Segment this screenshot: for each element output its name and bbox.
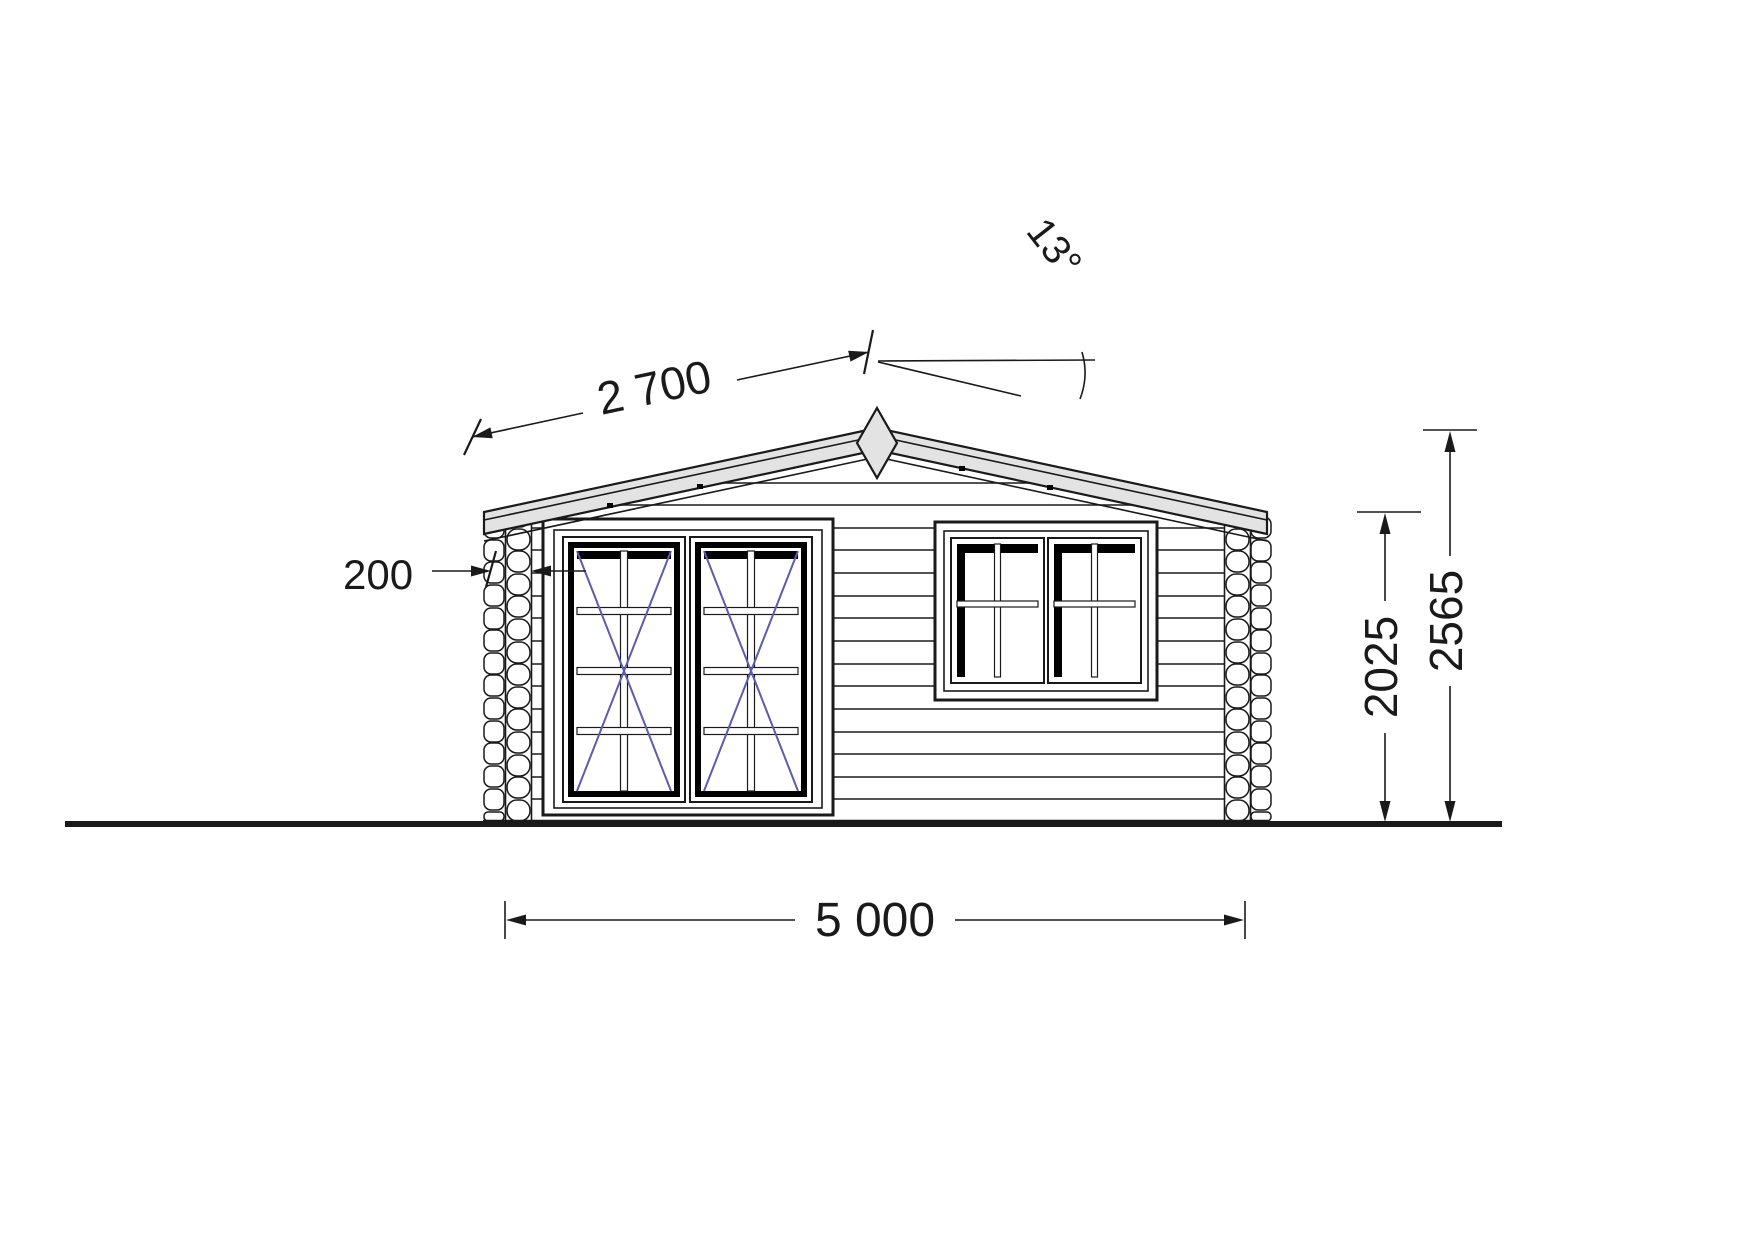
door-muntin [704, 728, 798, 735]
dimension-label-roof-angle: 13° [1018, 210, 1090, 285]
log-end-column [484, 517, 504, 821]
window-muntin [1054, 601, 1135, 607]
elevation-drawing: 2 700 13° 200 2025 2565 [0, 0, 1755, 1240]
door-left-leaf [563, 537, 685, 802]
window-glass-shadow-left [1054, 553, 1062, 677]
window-muntin [957, 601, 1038, 607]
drawing-svg: 2 700 13° 200 2025 2565 [0, 0, 1755, 1240]
window-glass-shadow-left [957, 553, 965, 677]
angle-reference-line [878, 360, 1095, 361]
dimension-label-roof-slope: 2 700 [592, 350, 715, 425]
door-muntin [704, 608, 798, 615]
door-muntin [577, 608, 671, 615]
window-right-sash [1048, 538, 1141, 683]
window-mullion [995, 544, 1001, 677]
dimension-arrow [1380, 513, 1391, 534]
double-door [543, 519, 833, 815]
dimension-ridge-height: 2565 [1420, 430, 1477, 822]
fascia-clip [959, 466, 965, 471]
dimension-roof-angle: 13° [878, 210, 1095, 399]
angle-arc [1080, 352, 1085, 399]
dimension-label-wall-thickness: 200 [343, 551, 413, 598]
dimension-arrow [1445, 801, 1456, 822]
log-end-column [1251, 517, 1271, 821]
dimension-arrow [1445, 431, 1456, 452]
fascia-clip [607, 503, 613, 508]
dimension-label-wall-height: 2025 [1355, 616, 1407, 718]
dimension-arrow [1224, 915, 1244, 926]
fascia-clip [697, 484, 703, 489]
dimension-roof-slope-length: 2 700 [464, 330, 873, 455]
dimension-label-ridge-height: 2565 [1420, 570, 1472, 672]
angle-slope-line [878, 362, 1021, 396]
fascia-clip [1047, 485, 1053, 490]
door-right-leaf [690, 537, 812, 802]
ridge-finial-diamond [857, 408, 897, 478]
dimension-overall-width: 5 000 [505, 894, 1245, 947]
dimension-wall-height: 2025 [1355, 512, 1421, 822]
door-muntin [577, 728, 671, 735]
window-mullion [1092, 544, 1098, 677]
window-left-sash [951, 538, 1044, 683]
window [935, 522, 1157, 700]
dimension-arrow [506, 915, 526, 926]
dimension-arrow [1380, 801, 1391, 822]
dimension-label-overall-width: 5 000 [815, 894, 935, 947]
